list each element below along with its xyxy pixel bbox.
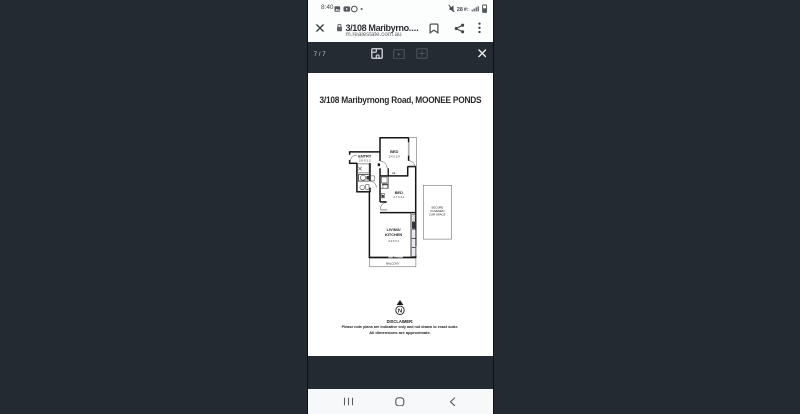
svg-text:4.4 X 6.1: 4.4 X 6.1 [388, 239, 399, 243]
svg-text:2.6 X 1.2: 2.6 X 1.2 [359, 158, 371, 162]
svg-text:RB: RB [392, 173, 395, 175]
svg-text:2.7 X 4.1: 2.7 X 4.1 [393, 195, 404, 199]
svg-text:2.4 X 2.9: 2.4 X 2.9 [389, 155, 400, 159]
svg-text:KITCHEN: KITCHEN [385, 232, 402, 237]
svg-text:#:: #: [463, 7, 468, 13]
svg-text:BED: BED [395, 190, 403, 195]
svg-text:BALCONY: BALCONY [386, 262, 400, 266]
svg-text:BED: BED [390, 149, 398, 154]
svg-text:N: N [398, 308, 402, 314]
svg-text:CAR SPACE: CAR SPACE [429, 213, 446, 217]
svg-text:28: 28 [456, 7, 462, 13]
